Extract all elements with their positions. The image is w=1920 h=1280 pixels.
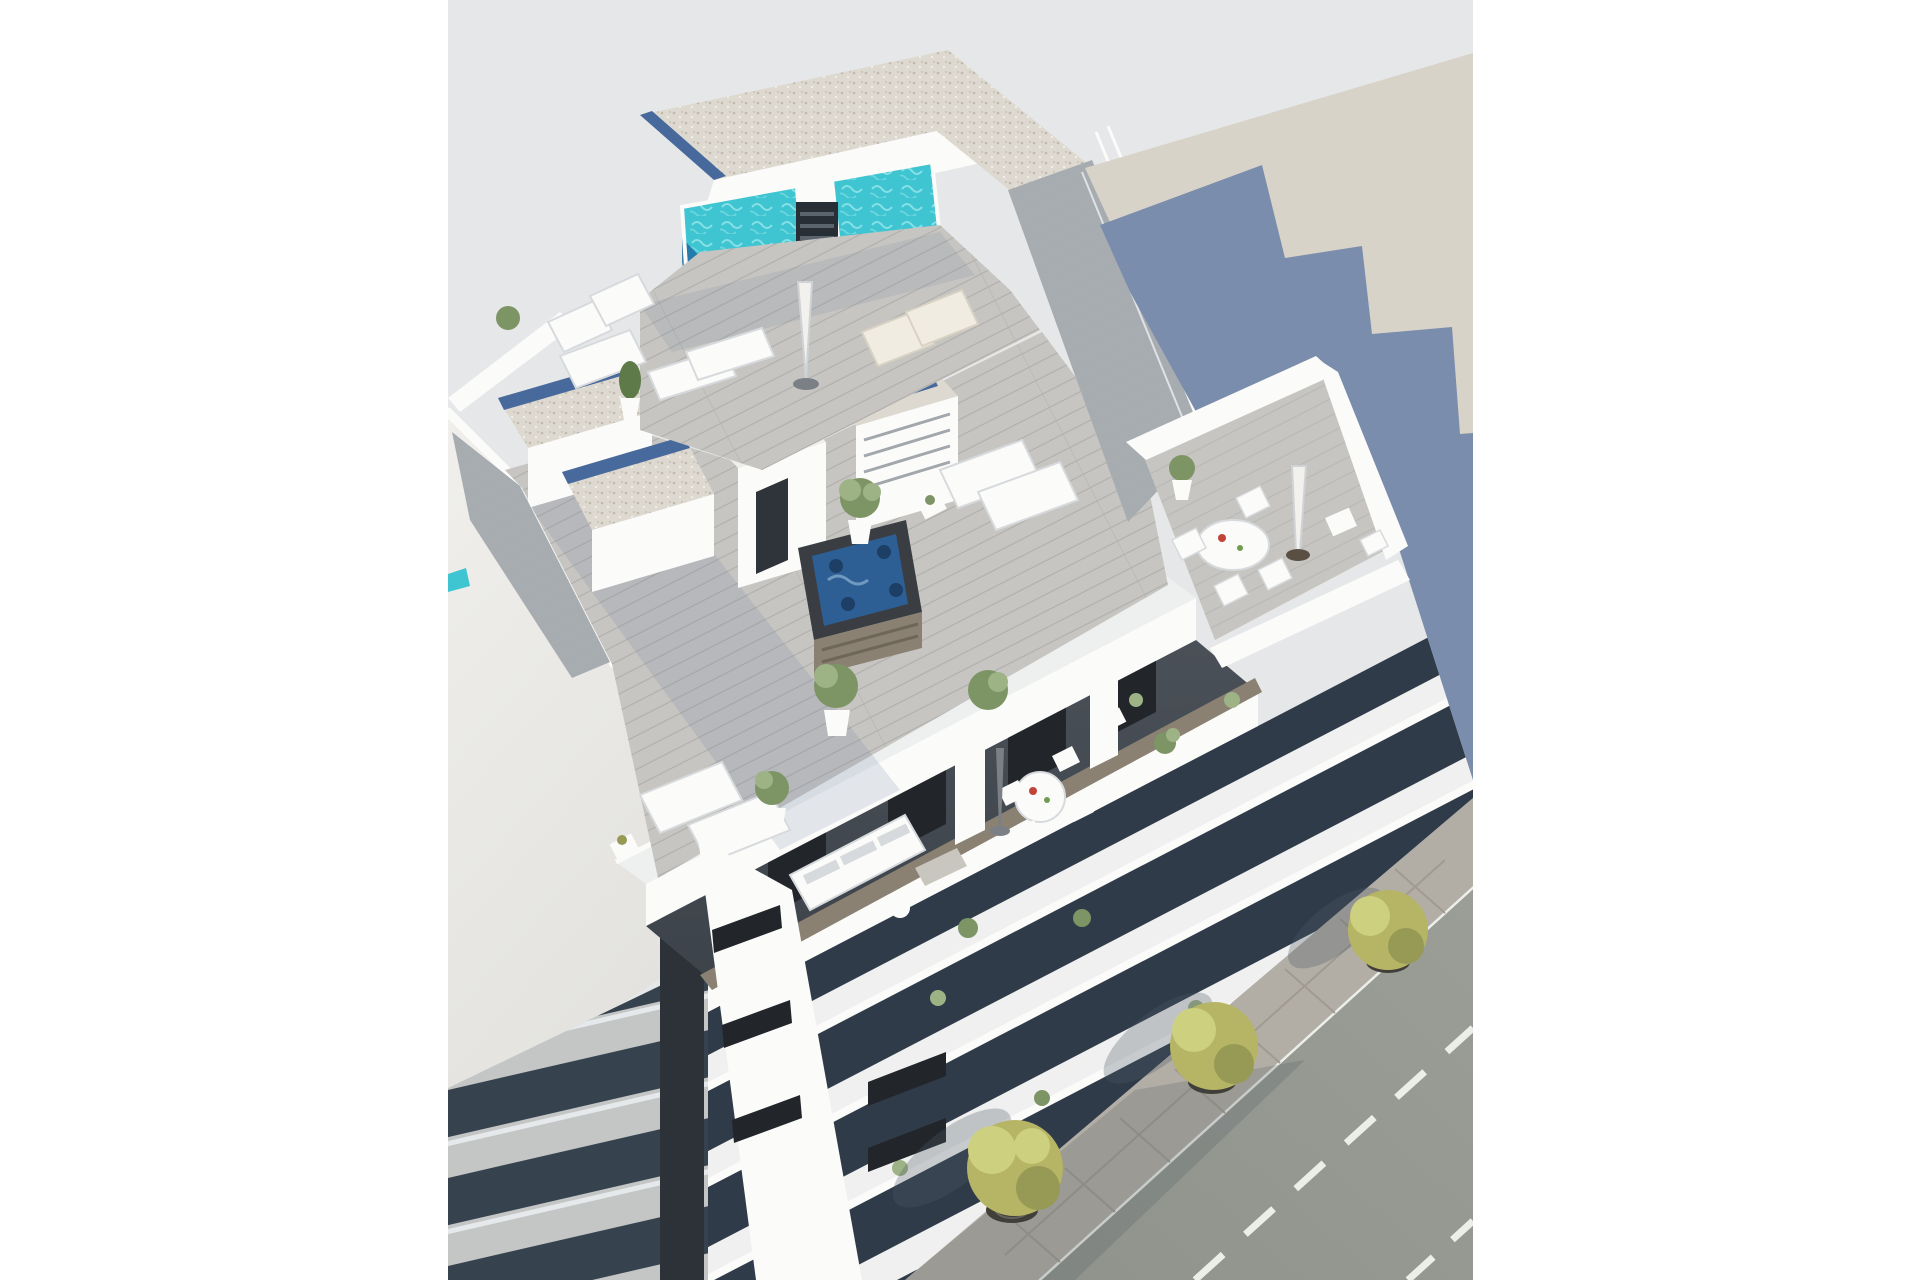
- page: [0, 0, 1920, 1280]
- street-tree: [967, 1120, 1063, 1216]
- terrace-door: [756, 478, 788, 574]
- dining-table: [1197, 520, 1269, 570]
- render-photo: [0, 0, 1920, 1280]
- plant: [496, 306, 520, 330]
- pouf: [890, 898, 910, 918]
- street-tree: [1170, 1002, 1258, 1090]
- render-canvas: [0, 0, 1920, 1280]
- street-tree: [1348, 890, 1428, 970]
